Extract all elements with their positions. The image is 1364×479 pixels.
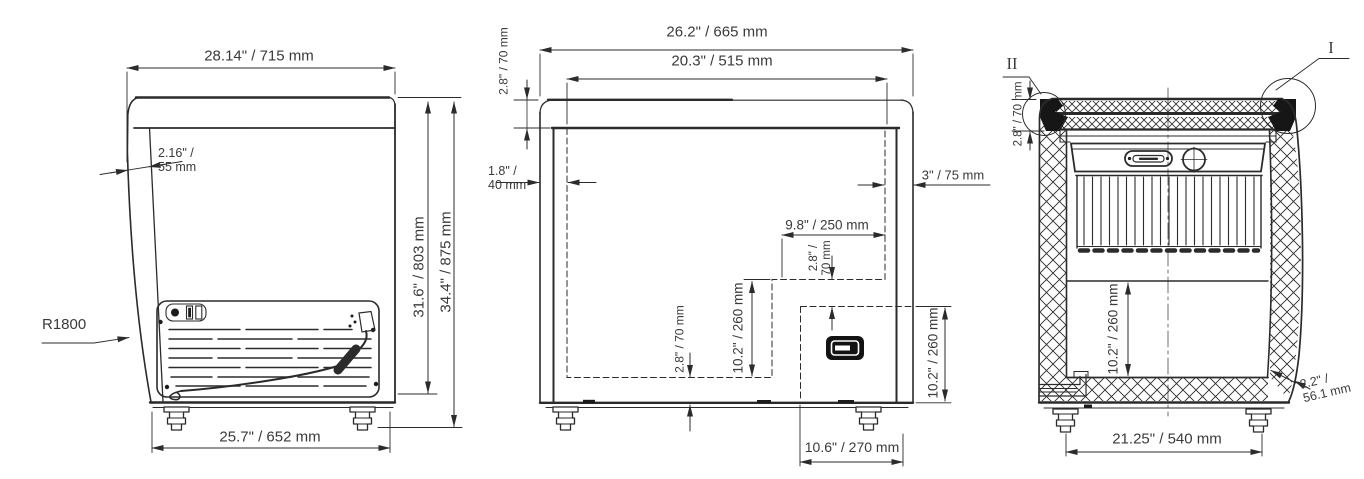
section-base-width-label: 21.25" / 540 mm [1112,432,1222,449]
foot [553,407,578,430]
side-width-top-label: 28.14" / 715 mm [204,49,314,66]
left-wall-insulation [1040,126,1066,401]
front-right-inset-label: 3" / 75 mm [922,169,984,184]
section-view [1003,59,1349,457]
foot [856,407,881,430]
drain-plug [826,336,864,360]
front-curve [127,98,151,403]
section-interior-depth-label: 10.2" / 260 mm [1105,283,1120,374]
foot [1246,409,1271,432]
front-compartment-width-label: 10.6" / 270 mm [805,440,899,456]
section-detail-i-label: I [1328,39,1334,57]
power-switch-dot [171,309,179,317]
front-bottom-inset-label: 2.8" / 70 mm [673,305,686,373]
freezer-dimension-drawing: 28.14" / 715 mm 2.16" / 55 mm R1800 31.6… [0,0,1364,479]
foot [350,407,375,430]
front-step-width-label: 9.8" / 250 mm [785,217,869,232]
side-width-bottom-label: 25.7" / 652 mm [219,430,320,447]
section-lid-height-label: 2.8" / 70 mm [1013,82,1026,147]
side-height-body-label: 31.6" / 803 mm [412,216,429,317]
side-lid-thickness-label: 2.16" / 55 mm [158,146,196,174]
grille-slats [169,330,371,387]
foot [1053,409,1078,432]
side-height-total-label: 34.4" / 875 mm [439,211,456,312]
lid-insulation-bottom [1050,117,1288,129]
section-detail-ii-label: II [1007,55,1018,73]
front-step-offset-label: 2.8" / 70 mm [808,240,834,275]
front-compartment-height-label: 10.2" / 260 mm [925,307,940,398]
bottom-insulation [1066,377,1268,401]
side-dimensions [42,68,462,453]
detail-leaders [1003,59,1349,95]
side-view [42,68,462,453]
front-lid-height-label: 2.8" / 70 mm [497,27,510,95]
front-view [496,50,990,466]
front-overall-width-label: 26.2" / 665 mm [666,25,767,42]
front-opening-width-label: 20.3" / 515 mm [671,54,772,71]
right-wall-insulation [1270,105,1301,399]
condenser-grille [157,301,379,400]
drawing-linework [0,0,1364,479]
front-step-height-label: 10.2" / 260 mm [730,282,745,373]
lid-insulation-top [1056,101,1282,112]
front-left-inset-label: 1.8" / 40 mm [488,164,526,192]
side-radius-label: R1800 [42,317,86,334]
evaporator-fins [1076,176,1262,251]
foot [164,407,189,430]
